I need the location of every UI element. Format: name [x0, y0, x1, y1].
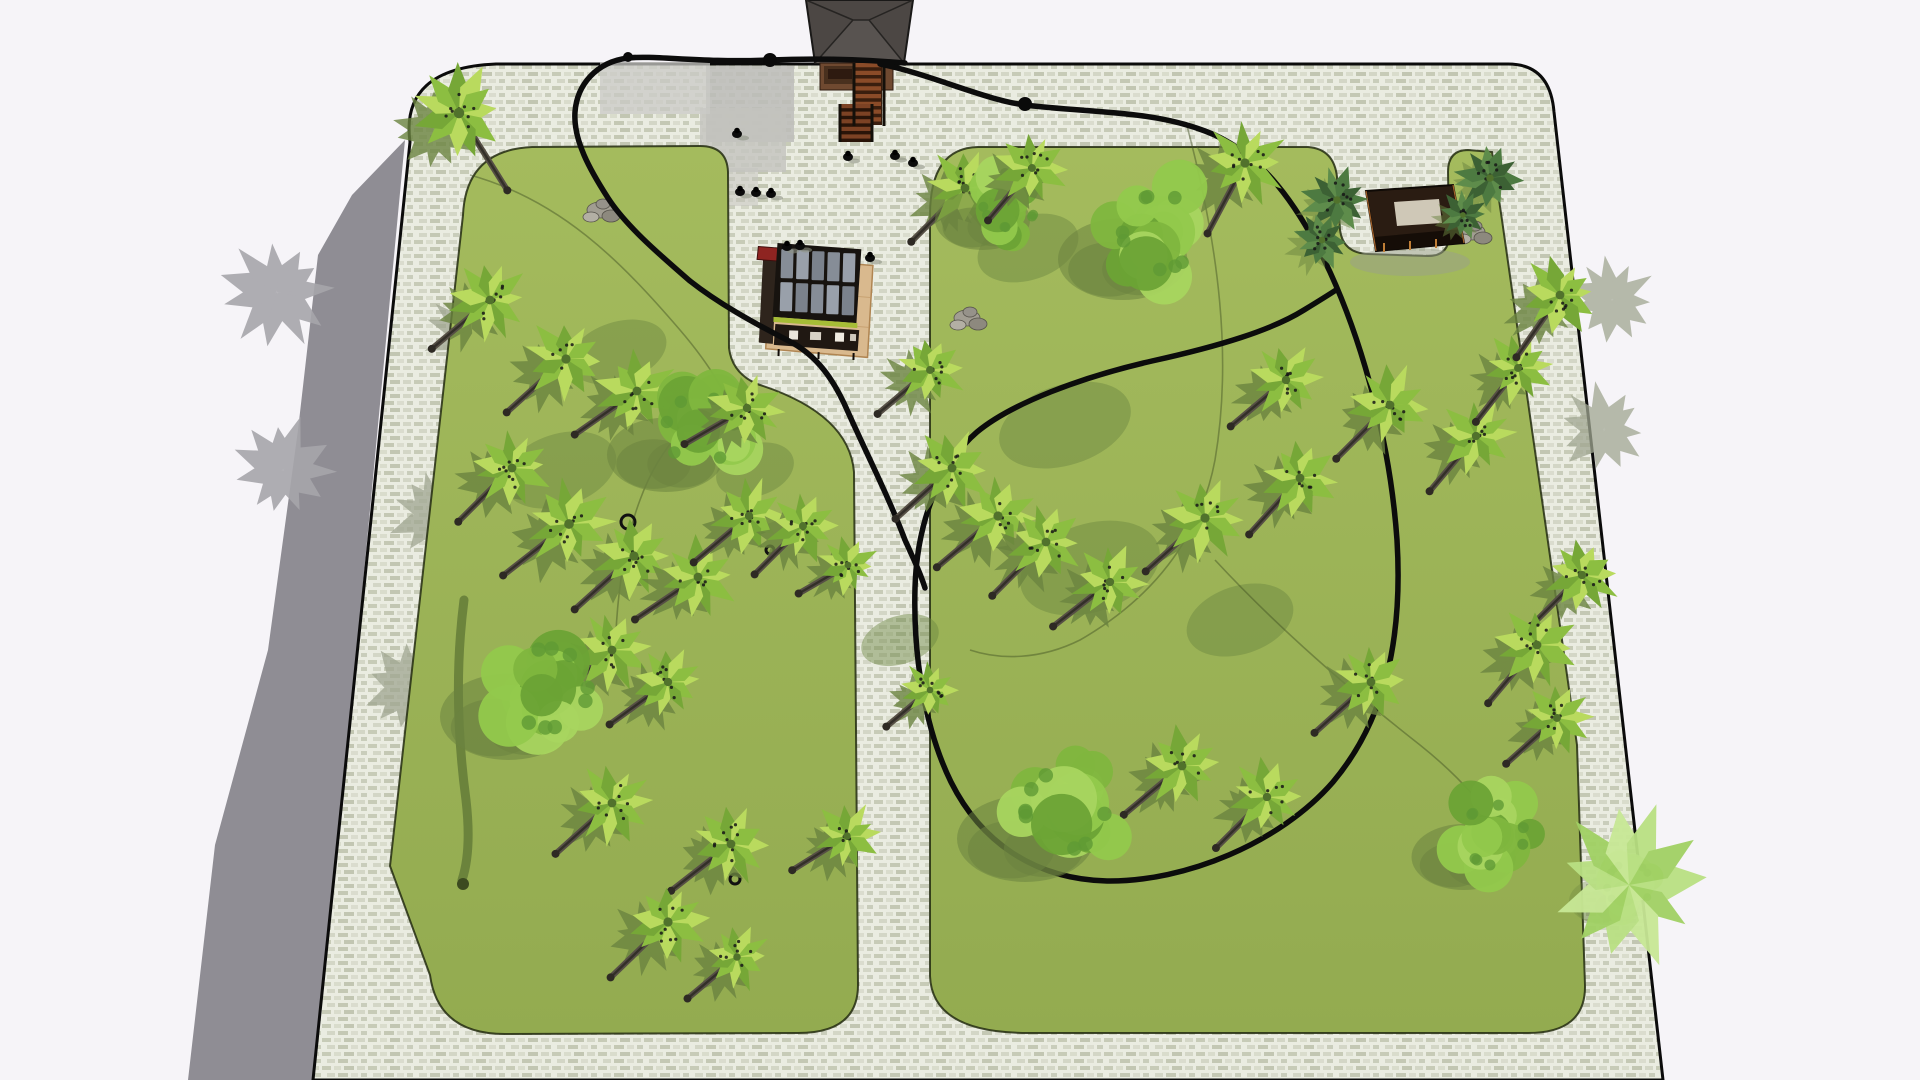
park-3d-viewport[interactable] — [0, 0, 1920, 1080]
lawns — [390, 146, 1585, 1034]
site-plan-render[interactable] — [0, 0, 1920, 1080]
refreshment-kiosk — [754, 242, 873, 360]
